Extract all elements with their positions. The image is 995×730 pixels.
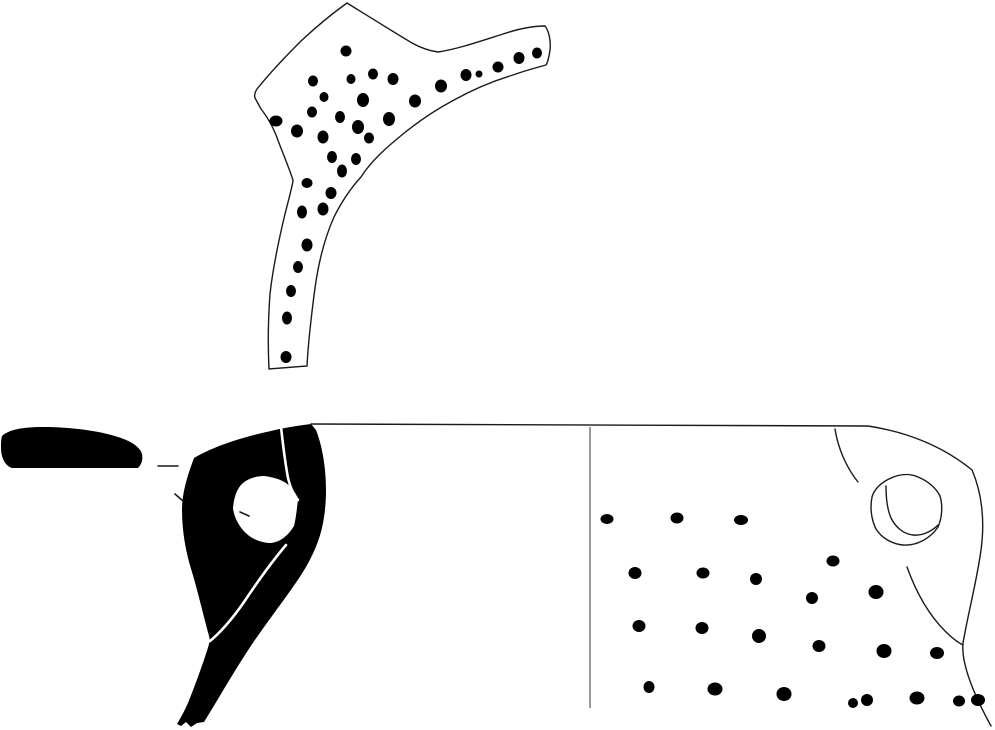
punctate-dot	[869, 585, 884, 599]
punctate-dot	[752, 629, 766, 643]
punctate-dot	[388, 73, 399, 85]
punctate-dot	[368, 69, 378, 80]
punctate-dot	[953, 696, 965, 707]
punctate-dot	[318, 203, 329, 216]
punctate-dot	[282, 312, 292, 325]
punctate-dot	[364, 133, 374, 144]
punctate-dot	[827, 556, 840, 567]
punctate-dot	[532, 48, 542, 59]
punctate-dot	[629, 567, 642, 579]
punctate-dot	[281, 351, 292, 363]
punctate-dot	[633, 620, 646, 632]
punctate-dot	[601, 514, 614, 524]
punctate-dot	[293, 261, 303, 273]
punctate-dot	[326, 187, 337, 199]
punctate-dot	[671, 513, 684, 524]
punctate-dot	[327, 151, 337, 163]
punctate-dot	[320, 92, 329, 102]
rim-and-body-edge	[311, 424, 991, 726]
punctate-dot	[409, 95, 421, 108]
pottery-figure	[0, 0, 995, 730]
top-sherd-outline	[255, 3, 551, 369]
punctate-dot	[644, 681, 655, 693]
rim-section-bar	[1, 427, 142, 468]
punctate-dot	[286, 285, 296, 297]
punctate-dot	[307, 107, 317, 118]
punctate-dot	[971, 694, 985, 706]
punctate-dot	[297, 206, 307, 219]
profile-section	[1, 424, 326, 727]
punctate-dot	[697, 568, 710, 579]
punctate-dot	[930, 647, 944, 659]
punctate-dot	[357, 93, 369, 107]
punctate-dot	[696, 622, 709, 634]
punctate-dot	[435, 80, 447, 93]
punctate-dot	[383, 112, 395, 126]
punctate-dot	[750, 573, 762, 585]
punctate-dot	[335, 111, 345, 123]
punctate-dot	[291, 125, 303, 138]
punctate-dot	[708, 683, 723, 696]
punctate-dot	[302, 178, 313, 188]
punctate-dot	[514, 52, 525, 64]
punctate-dot	[270, 116, 283, 127]
handle-stub-inner-line	[886, 486, 938, 535]
punctate-dot	[476, 71, 483, 78]
exterior-view	[311, 424, 991, 726]
punctate-dot	[777, 687, 792, 701]
punctate-dot	[308, 76, 318, 87]
handle-upper-arc	[835, 429, 858, 482]
exterior-dots	[601, 513, 986, 709]
punctate-dot	[347, 74, 356, 84]
punctate-dot	[461, 69, 472, 81]
handle-stub-outline	[871, 475, 942, 545]
punctate-dot	[806, 592, 818, 604]
punctate-dot	[337, 165, 347, 178]
top-sherd	[255, 3, 551, 369]
punctate-dot	[813, 640, 826, 652]
punctate-dot	[877, 644, 892, 658]
alignment-dash	[175, 494, 183, 501]
punctate-dot	[352, 120, 364, 134]
punctate-dot	[861, 694, 873, 706]
punctate-dot	[910, 692, 925, 705]
punctate-dot	[734, 515, 748, 525]
punctate-dot	[341, 46, 352, 57]
figure-stage	[0, 0, 995, 730]
punctate-dot	[318, 131, 329, 144]
handle-lower-curve	[907, 567, 963, 645]
section-body	[177, 424, 326, 727]
punctate-dot	[302, 239, 313, 252]
punctate-dot	[493, 62, 504, 73]
punctate-dot	[351, 153, 361, 165]
punctate-dot	[848, 698, 858, 708]
